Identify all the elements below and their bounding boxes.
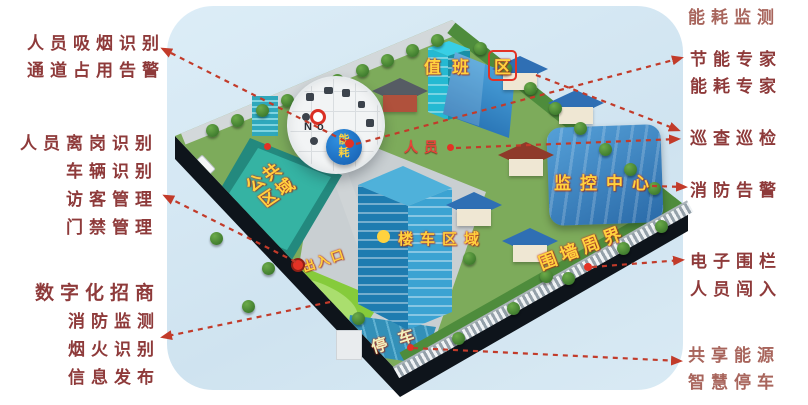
callout-line: 人员吸烟识别 xyxy=(10,30,165,57)
callout-electronic-fence: 电子围栏 人员闯入 xyxy=(690,248,782,304)
callout-line: 消防告警 xyxy=(690,176,782,201)
tree-icon xyxy=(352,312,365,325)
marker-dot-energy xyxy=(345,139,354,148)
marker-dot-personnel xyxy=(447,144,454,151)
tree-icon xyxy=(524,82,537,95)
label-personnel: 人员 xyxy=(404,137,444,157)
callout-line: 访客管理 xyxy=(8,186,158,214)
callout-line: 节能专家 xyxy=(690,46,782,73)
callout-patrol-inspection: 巡查巡检 xyxy=(690,124,782,149)
callout-shared-energy-parking: 共享能源 智慧停车 xyxy=(688,342,780,396)
callout-line: 巡查巡检 xyxy=(690,124,782,149)
marker-dot-perimeter xyxy=(584,263,592,271)
tree-icon xyxy=(655,220,668,233)
callout-line: 智慧停车 xyxy=(688,369,780,396)
tree-icon xyxy=(262,262,275,275)
energy-badge: 能 耗 xyxy=(326,129,362,165)
callout-line: 能耗监测 xyxy=(688,3,780,28)
tree-icon xyxy=(549,102,562,115)
tree-icon xyxy=(242,300,255,313)
tree-icon xyxy=(381,54,394,67)
callout-energy-monitoring: 能耗监测 xyxy=(688,3,780,28)
label-monitor-center: 监控中心 xyxy=(554,169,658,194)
callout-line: 信息发布 xyxy=(20,364,160,392)
callout-line: 门禁管理 xyxy=(8,214,158,242)
tree-icon xyxy=(574,122,587,135)
tree-icon xyxy=(562,272,575,285)
callout-line: 消防监测 xyxy=(20,308,160,336)
callout-energy-expert: 节能专家 能耗专家 xyxy=(690,46,782,100)
magnifier-no-label: No xyxy=(304,121,329,133)
duty-area-boxed: 区 xyxy=(488,50,517,81)
marker-dot-court xyxy=(264,143,271,150)
callout-fire-alarm: 消防告警 xyxy=(690,176,782,201)
tree-icon xyxy=(431,34,444,47)
callout-line: 共享能源 xyxy=(688,342,780,369)
tree-icon xyxy=(256,104,269,117)
callout-access-management: 人员离岗识别 车辆识别 访客管理 门禁管理 xyxy=(8,130,158,242)
callout-line: 能耗专家 xyxy=(690,73,782,100)
tree-icon xyxy=(599,143,612,156)
callout-line: 车辆识别 xyxy=(8,158,158,186)
callout-line: 数字化招商 xyxy=(20,280,160,308)
label-duty-area: 值班区 xyxy=(424,50,517,81)
marker-dot-parking xyxy=(407,344,414,351)
tree-icon xyxy=(210,232,223,245)
tree-icon xyxy=(452,332,465,345)
callout-line: 烟火识别 xyxy=(20,336,160,364)
tree-icon xyxy=(206,124,219,137)
tree-icon xyxy=(507,302,520,315)
marker-dot-building-vehicle xyxy=(377,230,390,243)
callout-smoking-recognition: 人员吸烟识别 通道占用告警 xyxy=(10,30,165,84)
callout-line: 通道占用告警 xyxy=(10,57,165,84)
tree-icon xyxy=(463,252,476,265)
tree-icon xyxy=(406,44,419,57)
callout-line: 电子围栏 xyxy=(690,248,782,276)
energy-badge-top: 能 xyxy=(326,134,362,147)
duty-area-text: 值班 xyxy=(424,58,480,77)
callout-line: 人员闯入 xyxy=(690,276,782,304)
energy-badge-bottom: 耗 xyxy=(326,147,362,160)
marker-pin-entrance xyxy=(291,258,305,272)
smart-park-infographic: No 能 耗 值班区 人员 监控中心 楼车区域 围墙周界 出入口 停车 公共 区… xyxy=(0,0,808,405)
callout-digital-investment: 数字化招商 消防监测 烟火识别 信息发布 xyxy=(20,280,160,392)
tree-icon xyxy=(356,64,369,77)
label-building-vehicle-area: 楼车区域 xyxy=(398,228,486,249)
callout-line: 人员离岗识别 xyxy=(8,130,158,158)
tree-icon xyxy=(231,114,244,127)
